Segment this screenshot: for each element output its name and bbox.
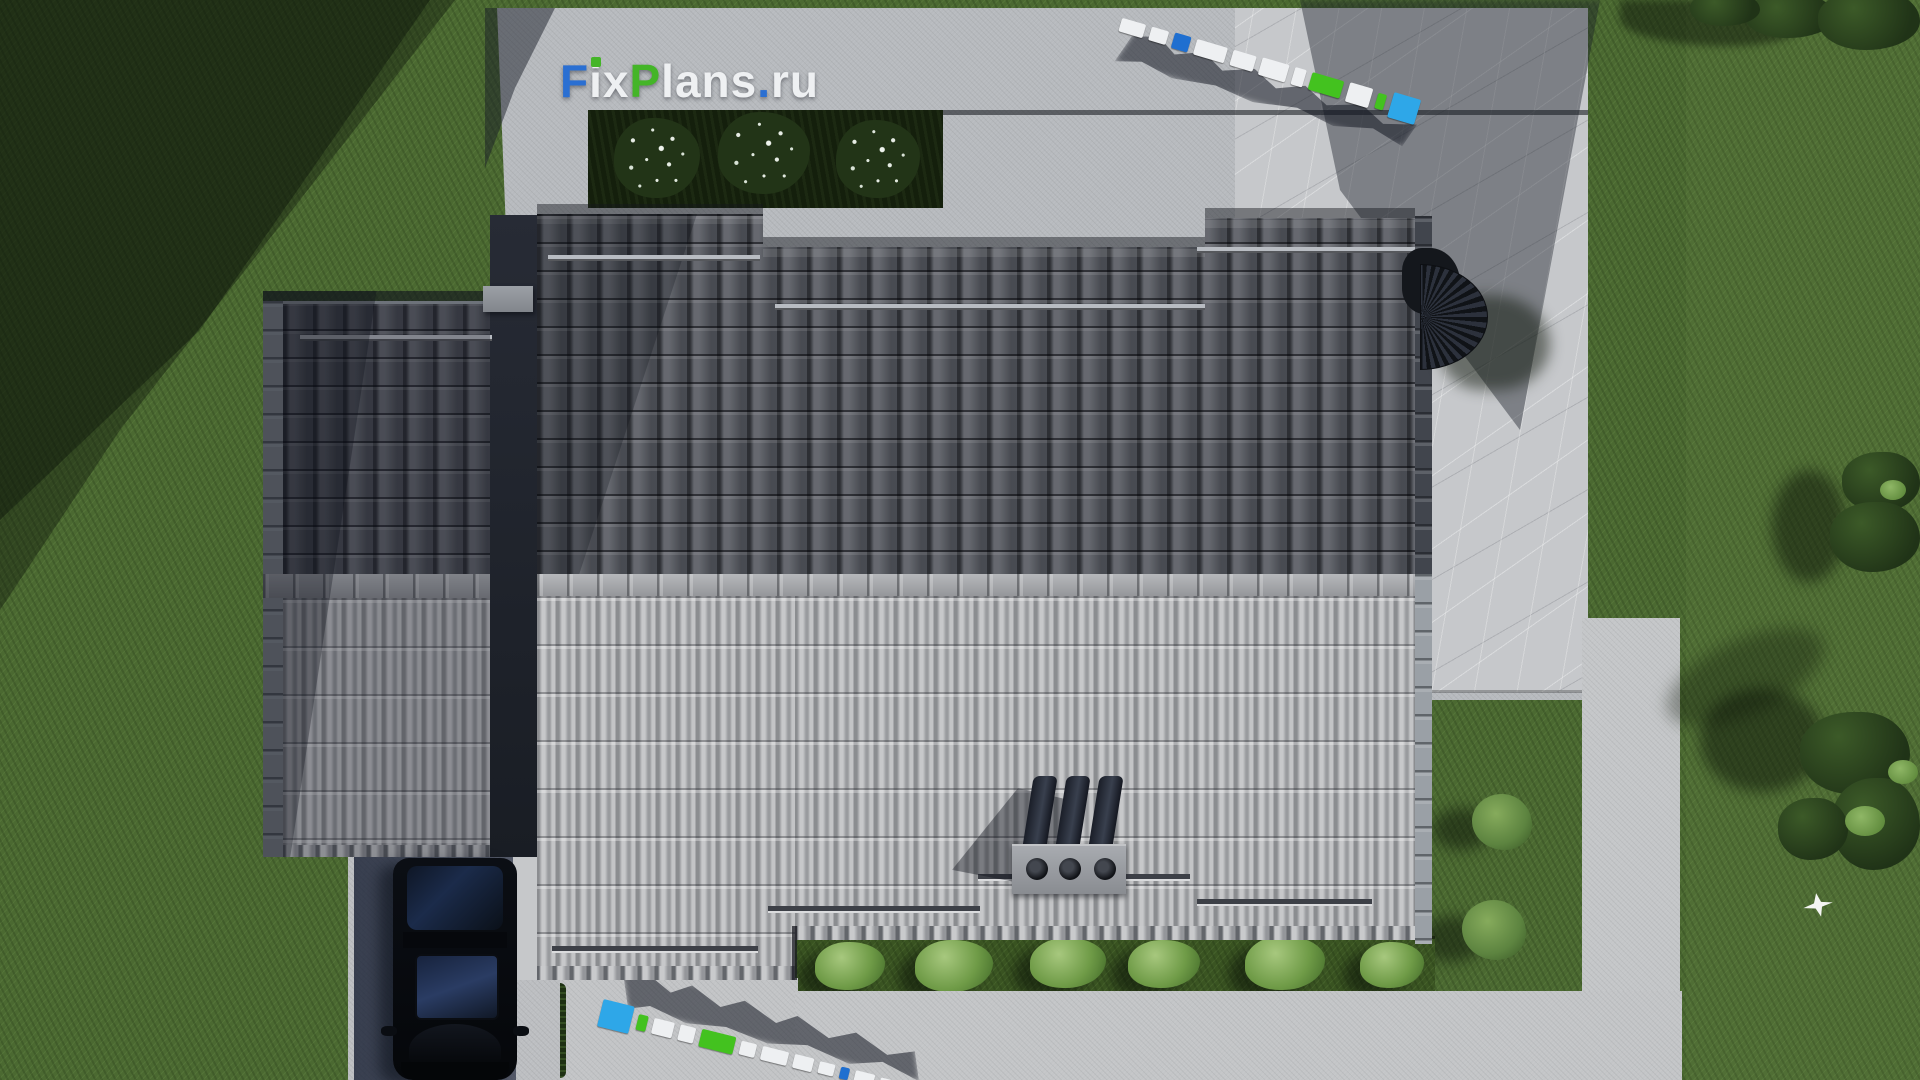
tree-sprig [1888,760,1918,784]
eave-caps [795,926,1430,940]
snow-guard [775,304,1205,310]
snow-guard [1197,247,1415,253]
tape-segment [635,1014,648,1032]
car-hood [401,1062,509,1080]
car-sunroof [415,954,499,1020]
tape-segment [760,1046,790,1066]
flower-bush [614,118,700,198]
logo-part-f: F [560,54,589,108]
tape-segment [738,1041,757,1058]
snow-guard [548,255,760,261]
tape-segment [677,1024,696,1043]
tape-segment [1258,57,1290,82]
tree-sprig [1880,480,1906,500]
tape-segment [651,1018,675,1039]
car-windshield [409,1024,501,1064]
tape-segment [1171,32,1191,52]
car [393,858,517,1080]
chimney-pipes [1028,776,1128,848]
tape-segment [1118,18,1146,39]
tape-segment [838,1066,850,1080]
logo-part-ru: ru [771,54,819,108]
tape-segment [817,1061,835,1077]
snow-guard [552,946,758,953]
tape-segment [853,1070,875,1080]
main-gable-cap-light [1415,574,1432,944]
tape-segment [698,1029,737,1055]
logo-part-p: P [629,54,661,108]
chimney-pipe [1022,776,1057,848]
logo-part-x: x [603,54,630,108]
eave-step-edge [792,926,797,980]
snow-guard [1197,899,1372,906]
tape-segment [597,999,635,1034]
chimney-pipe [1088,776,1123,848]
flower-bush [836,120,920,198]
logo-i-dot [591,57,601,67]
eave-highlight [1205,220,1415,228]
chimney-vent [1059,858,1081,880]
car-mirror-right [513,1026,529,1036]
tape-segment [1192,39,1228,64]
main-ridge [537,574,1430,598]
chimney-pipe [1055,776,1090,848]
tape-segment [1345,82,1374,108]
tape-segment [792,1054,814,1072]
car-rear-glass [407,866,503,930]
stage: FixPlans.ru [0,0,1920,1080]
flower-bush [718,112,810,194]
eave-highlight [763,249,1205,257]
tape-segment [1291,67,1308,88]
eave-caps [537,966,795,980]
main-light-slope-left [537,596,795,980]
tape-segment [1148,27,1169,45]
car-mirror-left [381,1026,397,1036]
garden-bush [1462,900,1526,960]
chimney-vent [1094,858,1116,880]
chimney-vent [1026,858,1048,880]
tape-segment [1308,72,1344,99]
vent-box [483,286,533,312]
tree-sprig [1845,806,1885,836]
walkway-bottom [795,991,1682,1080]
garden-bush [1472,794,1532,850]
tree-foliage [1830,502,1920,572]
logo-part-i: i [589,54,603,108]
chimney-base [1012,844,1126,894]
terrace-bottom-line [1430,690,1588,693]
tape-segment [1230,50,1257,72]
foundation-grass-strip [795,936,1435,999]
car-roof [403,932,507,948]
logo-part-dot: . [757,54,771,108]
watermark-logo: FixPlans.ru [560,54,819,108]
snow-guard [768,906,980,913]
tree-foliage [1778,798,1848,860]
logo-part-lans: lans [661,54,757,108]
tape-segment [1374,93,1387,111]
